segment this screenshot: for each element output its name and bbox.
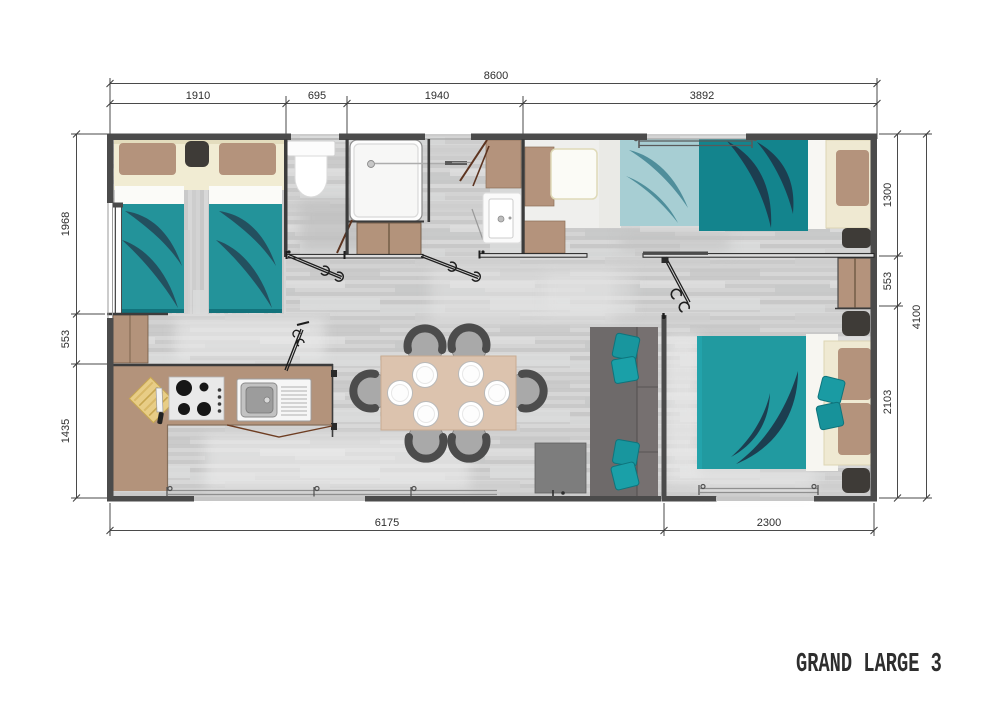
svg-text:2103: 2103 bbox=[882, 390, 894, 414]
svg-text:8600: 8600 bbox=[484, 70, 508, 82]
svg-text:3892: 3892 bbox=[690, 90, 714, 102]
svg-text:1435: 1435 bbox=[60, 419, 72, 443]
svg-text:2300: 2300 bbox=[757, 517, 781, 529]
svg-text:553: 553 bbox=[60, 330, 72, 348]
svg-text:695: 695 bbox=[308, 90, 326, 102]
svg-text:1968: 1968 bbox=[60, 212, 72, 236]
svg-text:1300: 1300 bbox=[882, 183, 894, 207]
svg-text:4100: 4100 bbox=[911, 305, 923, 329]
svg-text:1940: 1940 bbox=[425, 90, 449, 102]
svg-text:GRAND LARGE 3: GRAND LARGE 3 bbox=[796, 649, 942, 679]
svg-text:6175: 6175 bbox=[375, 517, 399, 529]
svg-text:553: 553 bbox=[882, 272, 894, 290]
svg-text:1910: 1910 bbox=[186, 90, 210, 102]
